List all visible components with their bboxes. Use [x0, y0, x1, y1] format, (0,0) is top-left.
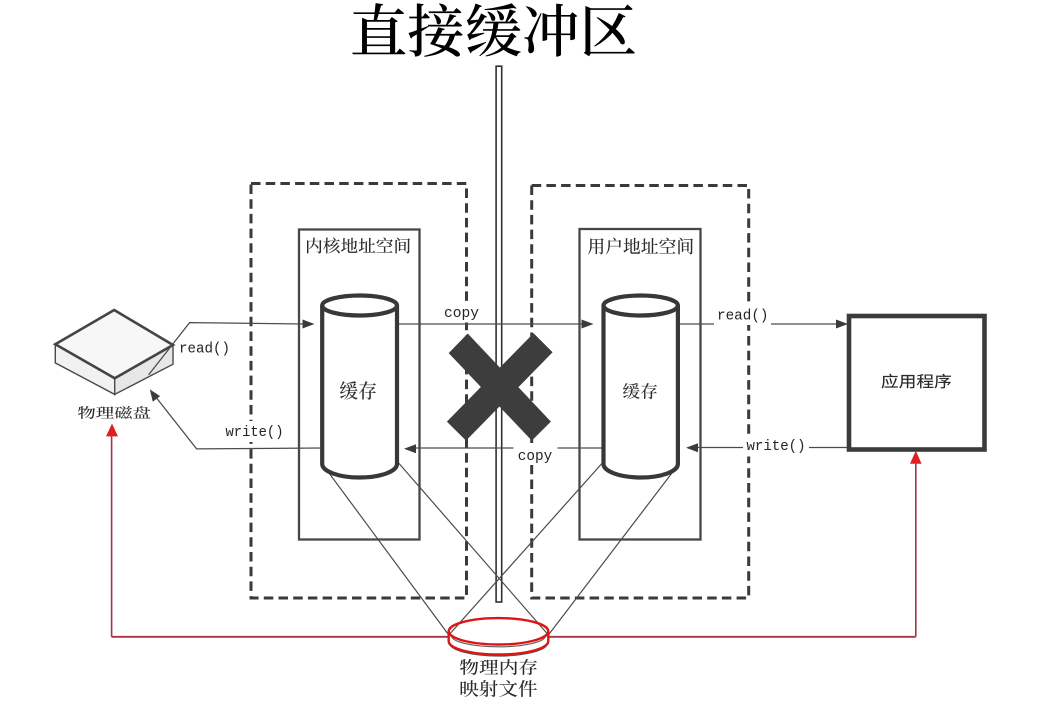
svg-text:copy: copy	[444, 306, 479, 322]
svg-text:read(): read()	[717, 309, 769, 325]
svg-text:write(): write()	[747, 439, 806, 455]
svg-text:write(): write()	[226, 425, 284, 441]
svg-text:read(): read()	[179, 341, 230, 357]
svg-text:copy: copy	[518, 449, 553, 465]
